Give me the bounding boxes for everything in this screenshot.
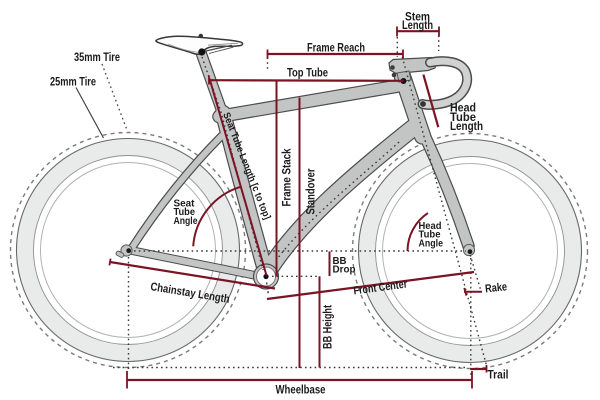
svg-text:Length: Length — [402, 20, 433, 32]
svg-text:Frame Reach: Frame Reach — [307, 41, 365, 55]
svg-text:Top Tube: Top Tube — [287, 66, 328, 80]
svg-text:Standover: Standover — [306, 168, 318, 214]
svg-text:Angle: Angle — [419, 237, 444, 249]
svg-text:35mm Tire: 35mm Tire — [74, 52, 120, 64]
svg-text:Angle: Angle — [174, 215, 198, 227]
svg-text:BB Height: BB Height — [323, 305, 335, 349]
svg-text:Frame Stack: Frame Stack — [282, 148, 294, 207]
svg-text:Trail: Trail — [488, 370, 509, 382]
svg-text:Drop: Drop — [333, 264, 356, 276]
svg-text:25mm Tire: 25mm Tire — [50, 77, 96, 89]
svg-text:Length: Length — [450, 121, 483, 133]
svg-text:Wheelbase: Wheelbase — [276, 385, 326, 397]
svg-text:Rake: Rake — [485, 281, 508, 295]
